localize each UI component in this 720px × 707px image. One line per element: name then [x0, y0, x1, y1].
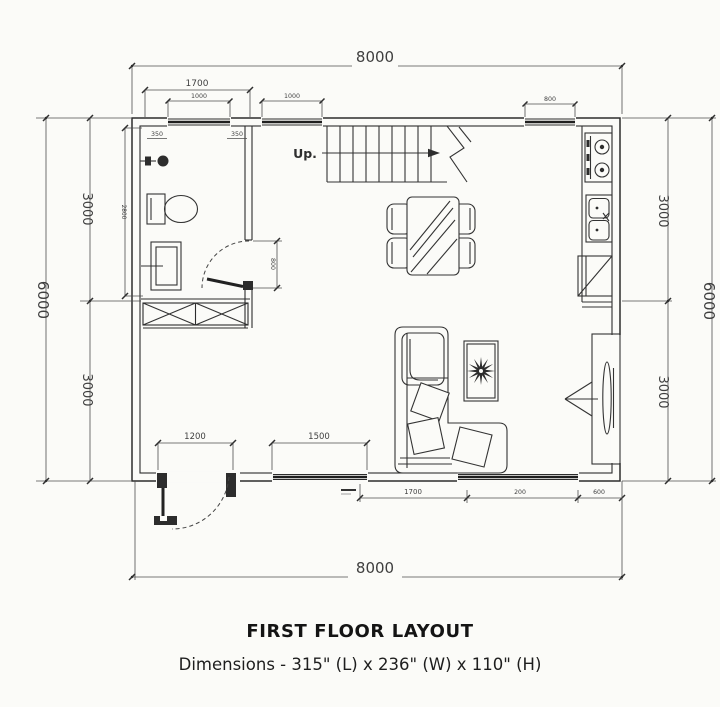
dim-bottom-run: 1700 200 600 [357, 484, 625, 503]
dim-label: 800 [544, 96, 556, 103]
dim-right-overall: 6000 [700, 115, 718, 484]
dim-label: 350 [151, 131, 163, 138]
dim-label: 800 [269, 258, 276, 270]
bathroom-sink [141, 242, 181, 290]
bathroom-door [202, 241, 249, 288]
sofa-pillow [411, 383, 449, 421]
stove [585, 133, 612, 182]
dim-label: 1000 [191, 93, 207, 100]
dim-label: 1000 [284, 93, 300, 100]
dim-label: 3000 [79, 192, 94, 225]
dim-label: 600 [593, 489, 605, 496]
bathroom [140, 126, 253, 328]
threshold-mark [341, 490, 356, 494]
living-room [395, 327, 507, 473]
dim-label: 2800 [120, 205, 126, 220]
dim-label: 6000 [34, 281, 52, 319]
dim-label: 6000 [700, 282, 718, 320]
page-subtitle: Dimensions - 315" (L) x 236" (W) x 110" … [0, 655, 720, 674]
dining-table [407, 197, 459, 275]
floor-plan-page: Up. [0, 0, 720, 707]
kitchen-sink [586, 195, 612, 242]
dim-label: 200 [514, 489, 526, 496]
dim-label: 3000 [655, 194, 670, 227]
coffee-table [464, 341, 498, 401]
dim-bottom-overall: 8000 [129, 481, 625, 580]
sofa [395, 327, 507, 473]
dim-living-window: 1500 [269, 432, 370, 470]
staircase: Up. [293, 126, 471, 182]
dim-bath-window: 1000 [166, 93, 233, 117]
dimension-lines: 8000 1700 1000 1000 [34, 48, 718, 580]
dim-label: 3000 [655, 375, 670, 408]
dim-entry-door: 1200 [155, 432, 236, 470]
toilet [147, 194, 198, 224]
dim-label: 8000 [356, 559, 394, 577]
dim-label: 1200 [184, 432, 206, 442]
chaise-cushion [402, 333, 444, 385]
dim-bath-door: 800 [253, 238, 282, 291]
stair-break-line [447, 126, 467, 182]
dim-left-overall: 6000 [34, 115, 131, 484]
dim-kitchen-window: 800 [523, 96, 578, 117]
dim-label: 350 [231, 131, 243, 138]
dim-offset-left: 350 [147, 131, 167, 139]
dim-label: 1700 [404, 488, 422, 496]
closet-hatch [141, 299, 250, 328]
dim-label: 1500 [308, 432, 330, 442]
kitchen-cabinet [578, 256, 612, 296]
shower-icon [140, 156, 169, 167]
sofa-pillow [452, 427, 492, 467]
dim-label: 8000 [356, 48, 394, 66]
floor-plan-drawing: Up. [0, 0, 720, 600]
dining-set [387, 197, 475, 275]
dim-label: 3000 [79, 373, 94, 406]
kitchen [578, 126, 612, 307]
up-label: Up. [293, 146, 317, 161]
entry-direction-arrow [565, 382, 598, 416]
dim-label: 1700 [186, 79, 209, 89]
bathroom-partition-wall [243, 126, 253, 328]
dim-stair-window: 1000 [260, 93, 325, 117]
sofa-pillow [408, 418, 445, 455]
dim-offset-right: 350 [227, 131, 247, 139]
page-title: FIRST FLOOR LAYOUT [0, 621, 720, 642]
